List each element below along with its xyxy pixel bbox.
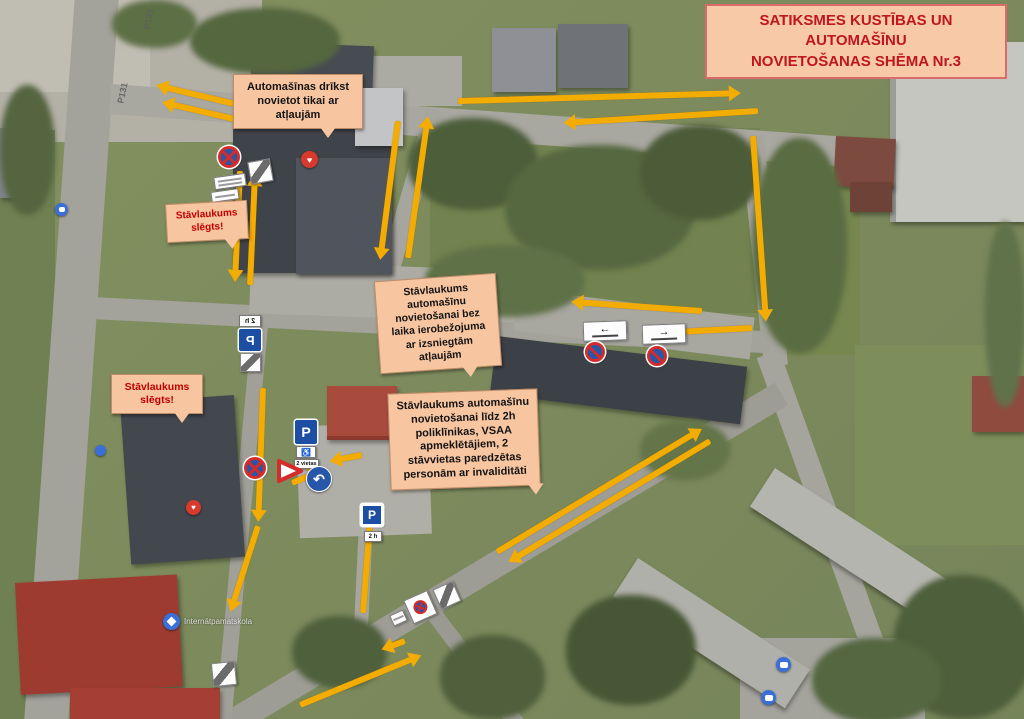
end-of-restrictions-sign bbox=[240, 353, 261, 372]
yield-sign bbox=[277, 459, 303, 483]
heart-icon: ♥ bbox=[191, 503, 196, 512]
bus-stop-poi-icon bbox=[776, 657, 791, 672]
scheme-title-line1: SATIKSMES KUSTĪBAS UN AUTOMAŠĪNU bbox=[713, 11, 999, 52]
direction-plate-right: → bbox=[642, 323, 687, 345]
sign-bar bbox=[588, 345, 601, 358]
arrow-left-icon: ← bbox=[599, 324, 610, 334]
plate-text-line bbox=[593, 335, 618, 338]
sign-time-plate: 2 h bbox=[364, 531, 382, 542]
parking-sign-mirrored: P bbox=[239, 329, 261, 351]
end-of-restrictions-sign bbox=[432, 581, 461, 610]
arrow-right-icon: → bbox=[658, 327, 669, 337]
parking-letter: P bbox=[301, 424, 310, 440]
bus-stop-poi-icon bbox=[761, 690, 776, 705]
turn-arrow-icon: ↶ bbox=[313, 471, 325, 488]
parking-letter: P bbox=[368, 508, 376, 522]
school-poi-icon bbox=[163, 613, 180, 630]
plate-text-line bbox=[652, 338, 677, 341]
transit-poi-icon bbox=[55, 203, 68, 216]
callout-text: Stāvlaukums automašīnu novietošanai līdz… bbox=[396, 396, 529, 481]
building-top-center-2 bbox=[558, 24, 628, 88]
trees bbox=[812, 638, 942, 719]
medical-poi-icon: ♥ bbox=[301, 151, 318, 168]
parking-sign: P bbox=[295, 420, 317, 444]
direction-plate-left: ← bbox=[583, 320, 628, 342]
no-parking-sign bbox=[647, 346, 667, 366]
poi-icon bbox=[95, 445, 106, 456]
graduation-cap-icon bbox=[167, 617, 177, 627]
no-stopping-sign bbox=[218, 146, 240, 168]
bus-icon bbox=[59, 207, 65, 212]
wheelchair-icon: ♿ bbox=[301, 448, 311, 457]
no-stopping-sign bbox=[244, 457, 266, 479]
callout-lot-closed-lower: Stāvlaukums slēgts! bbox=[111, 374, 203, 414]
parking-sign: P bbox=[361, 504, 383, 526]
trees bbox=[0, 85, 55, 215]
no-parking-sign bbox=[585, 342, 605, 362]
callout-text: Automašīnas drīkst novietot tikai ar atļ… bbox=[247, 81, 349, 121]
heart-icon: ♥ bbox=[307, 155, 312, 165]
callout-2h-parking: Stāvlaukums automašīnu novietošanai līdz… bbox=[387, 388, 540, 490]
callout-lot-closed-upper: Stāvlaukums slēgts! bbox=[165, 200, 249, 243]
end-of-restrictions-sign bbox=[247, 158, 274, 185]
trees bbox=[640, 125, 760, 220]
callout-no-time-limit: Stāvlaukums automašīnu novietošanai bez … bbox=[374, 273, 502, 374]
building-house-topright-2 bbox=[850, 182, 892, 212]
sign-info-plate bbox=[389, 610, 408, 627]
plate-text-line bbox=[215, 193, 235, 198]
bus-icon bbox=[765, 695, 773, 701]
plate-text-line bbox=[393, 615, 403, 621]
wheelchair-plate: ♿ bbox=[296, 446, 316, 458]
time-plate-text: 2 h bbox=[369, 534, 378, 540]
time-plate-text: 2 h bbox=[245, 318, 255, 325]
sign-time-plate-mirrored: 2 h bbox=[239, 315, 261, 327]
trees bbox=[566, 595, 696, 705]
bus-icon bbox=[780, 662, 788, 668]
parking-letter: P bbox=[246, 333, 255, 348]
scheme-title-line2: NOVIETOŠANAS SHĒMA Nr.3 bbox=[713, 52, 999, 72]
building-top-center-1 bbox=[492, 28, 556, 92]
no-stopping-sign bbox=[411, 598, 429, 616]
callout-text: Stāvlaukums slēgts! bbox=[125, 381, 190, 406]
callout-permit-only: Automašīnas drīkst novietot tikai ar atļ… bbox=[233, 74, 363, 129]
trees bbox=[985, 222, 1024, 407]
sign-bar bbox=[650, 349, 663, 362]
end-of-restrictions-sign bbox=[211, 661, 237, 687]
trees bbox=[190, 8, 340, 74]
mandatory-turn-sign: ↶ bbox=[306, 466, 332, 492]
medical-poi-icon: ♥ bbox=[186, 500, 201, 515]
trees bbox=[112, 0, 197, 48]
trees bbox=[440, 635, 545, 719]
traffic-scheme-map: P131 P131 2 h P P ♿ 2 viet bbox=[0, 0, 1024, 719]
building-school-red bbox=[15, 575, 183, 695]
scheme-title: SATIKSMES KUSTĪBAS UN AUTOMAŠĪNU NOVIETO… bbox=[705, 4, 1007, 79]
school-poi-label: Internātpamatskola bbox=[184, 617, 252, 626]
building-school-red-low bbox=[70, 688, 220, 719]
callout-text: Stāvlaukums slēgts! bbox=[176, 207, 238, 233]
plate-text-line bbox=[219, 181, 242, 186]
callout-text: Stāvlaukums automašīnu novietošanai bez … bbox=[391, 282, 486, 363]
